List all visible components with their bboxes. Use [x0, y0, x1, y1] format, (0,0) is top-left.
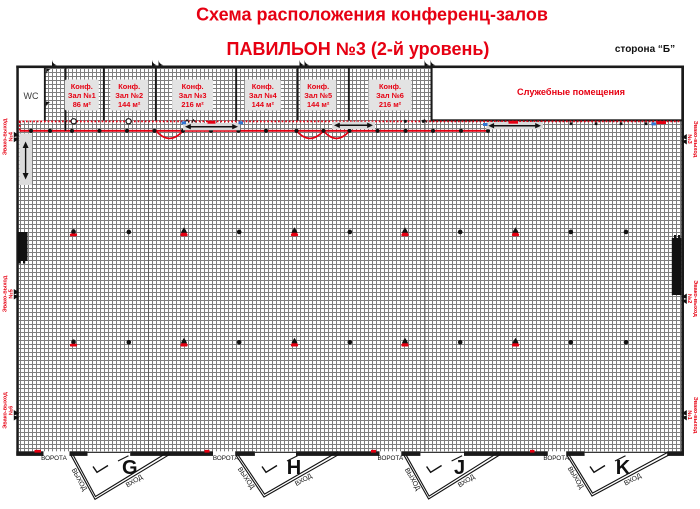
- svg-text:сторона “Б”: сторона “Б”: [615, 44, 675, 55]
- svg-text:ВОРОТА: ВОРОТА: [213, 455, 239, 462]
- svg-text:Конф.: Конф.: [379, 82, 401, 91]
- svg-text:ВОРОТА: ВОРОТА: [378, 455, 404, 462]
- svg-text:216 м²: 216 м²: [181, 100, 204, 109]
- svg-text:№1: №1: [686, 410, 692, 419]
- svg-text:WC: WC: [24, 91, 39, 101]
- svg-text:Конф.: Конф.: [252, 82, 274, 91]
- svg-text:Зал №6: Зал №6: [376, 91, 404, 100]
- svg-text:Конф.: Конф.: [182, 82, 204, 91]
- svg-text:Конф.: Конф.: [118, 82, 140, 91]
- svg-text:Зал №5: Зал №5: [304, 91, 332, 100]
- svg-text:Зал №3: Зал №3: [179, 91, 207, 100]
- svg-text:№6: №6: [9, 406, 15, 415]
- svg-text:Зал №1: Зал №1: [68, 91, 96, 100]
- svg-text:№3: №3: [686, 134, 692, 143]
- svg-text:№2: №2: [686, 294, 692, 303]
- svg-text:ПАВИЛЬОН №3 (2-й уровень): ПАВИЛЬОН №3 (2-й уровень): [227, 39, 490, 59]
- svg-text:144 м²: 144 м²: [118, 100, 141, 109]
- svg-text:№4: №4: [9, 131, 15, 141]
- svg-text:ВОРОТА: ВОРОТА: [41, 455, 67, 462]
- svg-text:216 м²: 216 м²: [379, 100, 402, 109]
- svg-text:Служебные помещения: Служебные помещения: [517, 87, 625, 97]
- svg-text:Схема расположения конференц-з: Схема расположения конференц-залов: [196, 5, 548, 25]
- svg-text:Зал №4: Зал №4: [249, 91, 278, 100]
- svg-text:G: G: [122, 457, 138, 479]
- svg-text:Конф.: Конф.: [307, 82, 329, 91]
- svg-text:H: H: [287, 457, 301, 479]
- svg-text:144 м²: 144 м²: [252, 100, 275, 109]
- svg-text:K: K: [616, 457, 631, 479]
- svg-text:№5: №5: [9, 289, 15, 298]
- svg-text:86 м²: 86 м²: [73, 100, 92, 109]
- svg-text:J: J: [454, 457, 465, 479]
- svg-text:ВОРОТА: ВОРОТА: [543, 455, 569, 462]
- svg-text:Зал №2: Зал №2: [115, 91, 143, 100]
- svg-text:144 м²: 144 м²: [307, 100, 330, 109]
- svg-text:Конф.: Конф.: [71, 82, 93, 91]
